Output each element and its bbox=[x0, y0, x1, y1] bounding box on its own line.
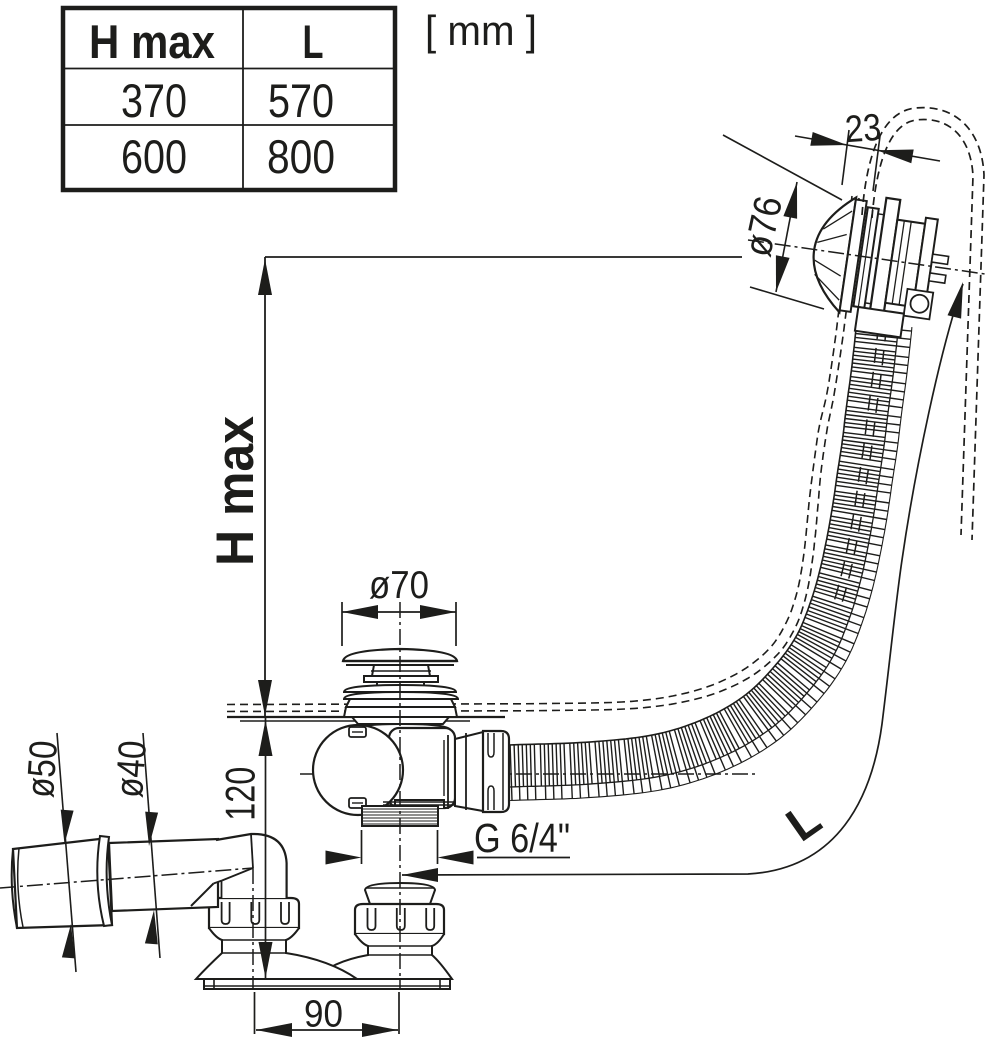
svg-text:H max: H max bbox=[89, 15, 215, 68]
svg-text:600: 600 bbox=[121, 130, 187, 183]
svg-text:L: L bbox=[303, 15, 324, 68]
svg-text:H max: H max bbox=[206, 416, 265, 566]
svg-text:800: 800 bbox=[267, 130, 335, 183]
svg-text:23: 23 bbox=[844, 107, 883, 151]
svg-text:120: 120 bbox=[217, 767, 264, 821]
svg-text:570: 570 bbox=[268, 74, 334, 127]
svg-text:ø70: ø70 bbox=[369, 564, 429, 607]
svg-text:G 6/4": G 6/4" bbox=[474, 815, 570, 861]
svg-text:[ mm ]: [ mm ] bbox=[425, 7, 537, 54]
svg-text:90: 90 bbox=[304, 994, 343, 1036]
svg-text:ø40: ø40 bbox=[108, 739, 155, 799]
svg-text:ø50: ø50 bbox=[19, 739, 66, 799]
svg-text:370: 370 bbox=[121, 74, 187, 127]
